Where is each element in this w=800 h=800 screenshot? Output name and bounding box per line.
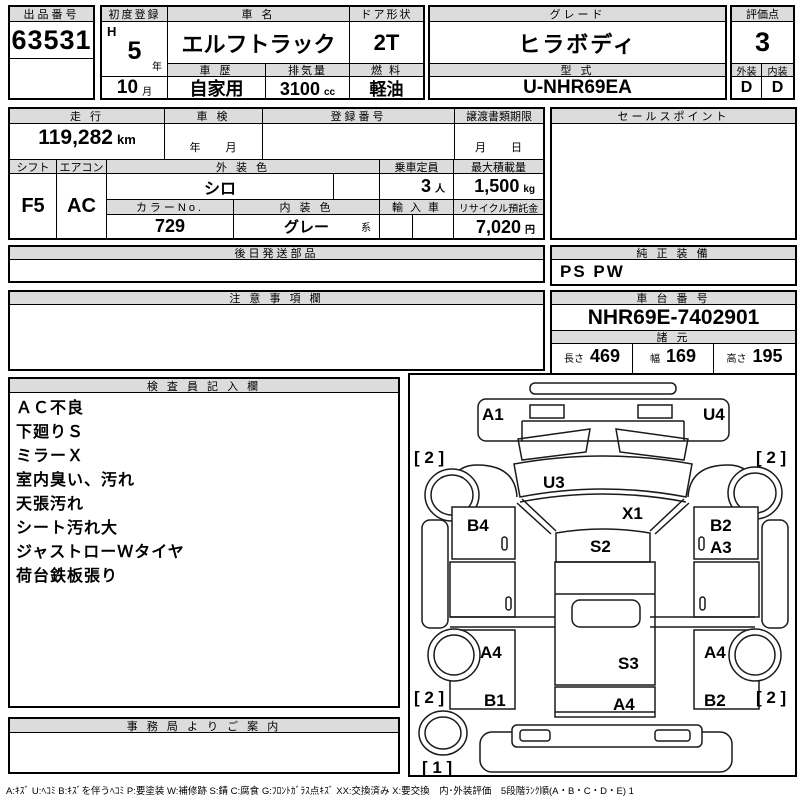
fuel-value: 軽油 — [350, 77, 423, 98]
bed-side-right — [694, 562, 759, 617]
ext-color-header: 外 装 色 — [107, 160, 380, 174]
first-reg-month: 10 — [117, 77, 138, 98]
grade-label: グレード — [550, 7, 606, 22]
cowl-line — [520, 494, 686, 502]
cab-front-panel-line — [522, 421, 684, 441]
notes-block: 注 意 事 項 欄 — [8, 290, 545, 371]
damage-label-s3: S3 — [618, 654, 639, 673]
interior-grade-header: 内装 — [762, 64, 793, 77]
damage-label-x1: X1 — [622, 504, 643, 523]
score-value: 3 — [732, 22, 793, 64]
exterior-grade-header: 外装 — [732, 64, 762, 77]
genuine-equip-header: 純 正 装 備 — [552, 247, 795, 260]
int-color-value: グレー — [284, 216, 329, 237]
lot-number-header: 出品番号 — [10, 7, 93, 22]
windshield-shape — [514, 456, 692, 497]
bed-side-left — [450, 562, 515, 617]
later-parts-header: 後日発送部品 — [10, 247, 543, 260]
truck-diagram: A1 U4 U3 X1 S2 B4 B2 A3 A4 A4 S3 A4 B1 B… — [410, 375, 795, 775]
aircon-label: エアコン — [60, 160, 104, 174]
damage-label-b1: B1 — [484, 691, 506, 710]
sales-point-label: セールスポイント — [618, 109, 730, 124]
notes-label: 注 意 事 項 欄 — [229, 292, 323, 305]
recycle-value-cell: 7,020 円 — [454, 215, 543, 238]
spec-height-cell: 高さ 195 — [714, 344, 795, 373]
office-notice-label: 事 務 局 よ り ご 案 内 — [127, 719, 281, 733]
interior-grade-value: D — [762, 77, 793, 98]
inspector-note-line: ミラーＸ — [16, 445, 392, 469]
headlight-right-shape — [638, 405, 672, 418]
tire-depth-front-left: [ 2 ] — [414, 448, 444, 467]
inspector-label: 検 査 員 記 入 欄 — [147, 379, 261, 393]
first-reg-header: 初度登録 — [102, 7, 168, 22]
recycle-unit: 円 — [525, 221, 535, 236]
int-color-label: 内 装 色 — [279, 200, 333, 215]
fuel-header: 燃 料 — [350, 64, 423, 77]
color-no-label: カラーNo. — [136, 200, 204, 215]
max-load-header: 最大積載量 — [454, 160, 543, 174]
windshield-pane-right — [616, 429, 688, 460]
lot-number-label: 出品番号 — [24, 7, 80, 22]
color-no-header: カラーNo. — [107, 200, 234, 215]
rear-wheel-left — [428, 629, 480, 681]
headlight-left-shape — [530, 405, 564, 418]
bed-side-right-latch — [700, 597, 705, 610]
model-code-value: U-NHR69EA — [430, 77, 725, 98]
inspector-block: 検 査 員 記 入 欄 ＡＣ不良 下廻りＳ ミラーＸ 室内臭い、汚れ 天張汚れ … — [8, 377, 400, 708]
displacement-unit: cc — [324, 87, 335, 98]
inspector-note-line: ジャストローＷタイヤ — [16, 541, 392, 565]
exterior-grade-value: D — [732, 77, 762, 98]
office-notice-block: 事 務 局 よ り ご 案 内 — [8, 717, 400, 774]
inspector-note-line: 荷台鉄板張り — [16, 565, 392, 589]
import-car-header: 輸 入 車 — [380, 200, 454, 215]
tire-depth-rear-left: [ 2 ] — [414, 688, 444, 707]
chassis-header: 車 台 番 号 — [552, 292, 795, 305]
damage-label-a4-right: A4 — [704, 643, 726, 662]
spec-height-label: 高さ — [726, 350, 746, 365]
spec-height-value: 195 — [752, 346, 782, 367]
max-load-label: 最大積載量 — [471, 160, 526, 174]
shift-value: F5 — [10, 174, 57, 238]
damage-label-b2-door: B2 — [710, 516, 732, 535]
max-load-unit: kg — [523, 184, 535, 195]
mileage-value-cell: 119,282 km — [10, 124, 165, 160]
lot-number-value: 63531 — [10, 22, 93, 59]
recycle-header: リサイクル預託金 — [454, 200, 543, 215]
inspector-note-line: 下廻りＳ — [16, 421, 392, 445]
damage-label-b4: B4 — [467, 516, 489, 535]
inspector-note-line: シート汚れ大 — [16, 517, 392, 541]
exterior-grade-label: 外装 — [737, 64, 757, 77]
first-reg-year-cell: H 5 年 — [102, 22, 168, 77]
rear-wheel-right — [729, 629, 781, 681]
max-load-value: 1,500 — [474, 176, 519, 197]
spec-length-label: 長さ — [564, 350, 584, 365]
spec-length-cell: 長さ 469 — [552, 344, 633, 373]
office-notice-header: 事 務 局 よ り ご 案 内 — [10, 719, 398, 733]
rear-bumper-bar — [512, 725, 702, 747]
first-reg-month-unit: 月 — [142, 83, 152, 98]
shaken-label: 車 検 — [196, 109, 230, 124]
damage-label-u4: U4 — [703, 405, 725, 424]
history-header: 車 歴 — [168, 64, 266, 77]
spec-width-label: 幅 — [650, 350, 660, 365]
inspector-note-line: ＡＣ不良 — [16, 397, 392, 421]
chassis-block: 車 台 番 号 NHR69E-7402901 諸 元 長さ 469 幅 169 … — [550, 290, 797, 375]
damage-label-s2: S2 — [590, 537, 611, 556]
later-parts-block: 後日発送部品 — [8, 245, 545, 283]
transfer-due-label: 譲渡書類期限 — [466, 109, 532, 124]
bed-side-left-latch — [506, 597, 511, 610]
damage-code-legend: A:ｷｽﾞ U:ﾍｺﾐ B:ｷｽﾞを伴うﾍｺﾐ P:要塗装 W:補修跡 S:錆 … — [6, 783, 798, 797]
damage-label-b2-rear: B2 — [704, 691, 726, 710]
sales-point-content — [552, 124, 795, 238]
lot-number-empty-cell — [10, 59, 93, 98]
cab-front-panel-shape — [478, 399, 729, 441]
notes-header: 注 意 事 項 欄 — [10, 292, 543, 305]
side-panel-outer-right — [762, 520, 788, 628]
spec-length-value: 469 — [590, 346, 620, 367]
chassis-value: NHR69E-7402901 — [552, 305, 795, 331]
ext-color-sub-cell — [334, 174, 380, 200]
reg-no-header: 登録番号 — [263, 109, 455, 124]
int-color-suffix: 系 — [361, 219, 371, 234]
tire-depth-front-right: [ 2 ] — [756, 448, 786, 467]
reg-no-label: 登録番号 — [331, 109, 387, 124]
sales-point-header: セールスポイント — [552, 109, 795, 124]
inspector-note-line: 室内臭い、汚れ — [16, 469, 392, 493]
damage-diagram-block: A1 U4 U3 X1 S2 B4 B2 A3 A4 A4 S3 A4 B1 B… — [408, 373, 797, 777]
first-reg-year-unit: 年 — [152, 58, 162, 73]
specs-label: 諸 元 — [656, 331, 690, 344]
aircon-value: AC — [57, 174, 107, 238]
first-reg-year: 5 — [128, 37, 142, 66]
displacement-value-cell: 3100 cc — [266, 77, 350, 98]
recycle-value: 7,020 — [476, 217, 521, 238]
vehicle-info-block: 走 行 車 検 登録番号 譲渡書類期限 119,282 km 年 月 月 日 シ… — [8, 107, 545, 240]
model-code-header: 型 式 — [430, 64, 725, 77]
score-label: 評価点 — [746, 7, 779, 22]
inspector-note-line: 天張汚れ — [16, 493, 392, 517]
door-shape-header: ドア形状 — [350, 7, 423, 22]
transfer-due-value-cell: 月 日 — [455, 124, 543, 160]
capacity-value: 3 — [421, 176, 431, 197]
model-code-label: 型 式 — [560, 64, 594, 77]
mileage-unit: km — [117, 132, 136, 147]
displacement-label: 排気量 — [288, 64, 327, 77]
sales-point-block: セールスポイント — [550, 107, 797, 240]
mileage-value: 119,282 — [38, 126, 113, 150]
grade-header: グレード — [430, 7, 725, 22]
transfer-due-header: 譲渡書類期限 — [455, 109, 543, 124]
shaken-value-cell: 年 月 — [165, 124, 263, 160]
lot-number-block: 出品番号 63531 — [8, 5, 95, 100]
door-shape-value: 2T — [350, 22, 423, 64]
score-block: 評価点 3 外装 内装 D D — [730, 5, 795, 100]
score-header: 評価点 — [732, 7, 793, 22]
first-reg-month-cell: 10 月 — [102, 77, 168, 98]
import-car-divider — [412, 215, 413, 238]
reg-no-value-cell — [263, 124, 455, 160]
damage-label-a3: A3 — [710, 538, 732, 557]
genuine-equip-block: 純 正 装 備 PS PW — [550, 245, 797, 286]
import-car-label: 輸 入 車 — [392, 200, 441, 215]
rear-window-shape — [572, 600, 640, 627]
capacity-label: 乗車定員 — [395, 160, 439, 174]
tire-depth-spare: [ 1 ] — [422, 758, 452, 775]
first-reg-label: 初度登録 — [109, 7, 161, 22]
later-parts-content — [10, 260, 543, 281]
shift-label: シフト — [17, 160, 50, 174]
notes-content — [10, 305, 543, 369]
specs-header: 諸 元 — [552, 331, 795, 344]
spec-width-value: 169 — [666, 346, 696, 367]
later-parts-label: 後日発送部品 — [235, 247, 319, 260]
displacement-header: 排気量 — [266, 64, 350, 77]
int-color-header: 内 装 色 — [234, 200, 380, 215]
car-name-label: 車 名 — [241, 7, 275, 22]
grade-block: グレード ヒラボディ 型 式 U-NHR69EA — [428, 5, 727, 100]
spec-width-cell: 幅 169 — [633, 344, 714, 373]
auction-sheet: 出品番号 63531 初度登録 車 名 ドア形状 H 5 年 10 月 エルフト… — [0, 0, 800, 800]
inspector-header: 検 査 員 記 入 欄 — [10, 379, 398, 393]
car-name-value: エルフトラック — [168, 22, 350, 64]
damage-labels: A1 U4 U3 X1 S2 B4 B2 A3 A4 A4 S3 A4 B1 B… — [414, 405, 786, 775]
capacity-unit: 人 — [435, 180, 445, 195]
side-panel-outer-left — [422, 520, 448, 628]
front-bumper-shape — [530, 383, 676, 394]
genuine-equip-label: 純 正 装 備 — [636, 247, 710, 260]
aircon-header: エアコン — [57, 160, 107, 174]
displacement-value: 3100 — [280, 79, 320, 98]
grade-value: ヒラボディ — [430, 22, 725, 64]
capacity-value-cell: 3 人 — [380, 174, 454, 200]
int-color-value-cell: グレー 系 — [234, 215, 380, 238]
shift-header: シフト — [10, 160, 57, 174]
capacity-header: 乗車定員 — [380, 160, 454, 174]
inspector-notes: ＡＣ不良 下廻りＳ ミラーＸ 室内臭い、汚れ 天張汚れ シート汚れ大 ジャストロ… — [16, 397, 392, 589]
damage-label-u3: U3 — [543, 473, 565, 492]
shaken-header: 車 検 — [165, 109, 263, 124]
car-name-header: 車 名 — [168, 7, 350, 22]
damage-label-a4-gate: A4 — [613, 695, 635, 714]
bed-center-shape — [555, 562, 655, 685]
tire-depth-rear-right: [ 2 ] — [756, 688, 786, 707]
fuel-label: 燃 料 — [371, 64, 402, 77]
max-load-value-cell: 1,500 kg — [454, 174, 543, 200]
recycle-label: リサイクル預託金 — [459, 200, 539, 215]
history-label: 車 歴 — [199, 64, 233, 77]
office-notice-content — [10, 733, 398, 772]
chassis-label: 車 台 番 号 — [636, 292, 710, 305]
truck-outline — [419, 383, 788, 772]
ext-color-value: シロ — [107, 174, 334, 200]
damage-label-a1: A1 — [482, 405, 504, 424]
ext-color-label: 外 装 色 — [216, 160, 270, 174]
damage-label-a4-left: A4 — [480, 643, 502, 662]
first-reg-era: H — [107, 24, 116, 39]
genuine-equip-value: PS PW — [552, 260, 795, 284]
mileage-label: 走 行 — [70, 109, 104, 124]
interior-grade-label: 内装 — [768, 64, 788, 77]
vehicle-name-block: 初度登録 車 名 ドア形状 H 5 年 10 月 エルフトラック 2T 車 歴 … — [100, 5, 425, 100]
door-shape-label: ドア形状 — [361, 7, 413, 22]
color-no-value: 729 — [107, 215, 234, 238]
windshield-pane-left — [518, 429, 590, 460]
bed-rail-lines — [450, 617, 755, 627]
history-value: 自家用 — [168, 77, 266, 98]
import-car-value-cell — [380, 215, 454, 238]
mileage-header: 走 行 — [10, 109, 165, 124]
